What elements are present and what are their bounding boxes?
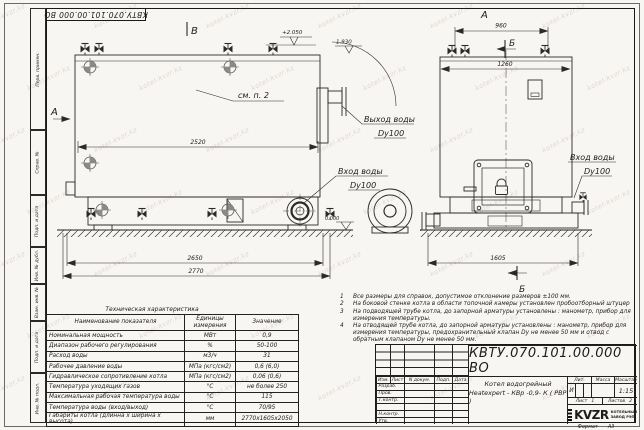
param-value: 115 — [236, 392, 299, 402]
tb-cell — [452, 390, 468, 397]
tb-row-nkontr: Н.контр. — [376, 410, 404, 417]
sheets-value: 2 — [629, 399, 632, 404]
format-label: Формат — [578, 424, 598, 430]
ground-line-left — [57, 230, 353, 237]
note-number: 4 — [337, 323, 353, 344]
tb-row-blank — [376, 403, 404, 410]
tb-row-razrab: Разраб. — [376, 383, 404, 390]
param-name: Максимальная рабочая температура воды — [47, 392, 185, 402]
tech-table-title: Техническая характеристика — [46, 306, 258, 313]
kvzr-logo-subtext: КОТЕЛЬНЫЙ ЗАВОД РЭП — [611, 410, 637, 419]
grid-line — [390, 345, 391, 376]
tb-cell — [404, 410, 434, 417]
param-value: 2770х1605х2050 — [236, 413, 299, 426]
grid-line — [452, 345, 453, 376]
tb-lit-value: И — [567, 383, 575, 397]
tb-cell — [452, 397, 468, 404]
tb-sheets-cell: Листов 2 — [602, 397, 637, 404]
view-label-v: В — [191, 26, 198, 37]
param-name: Номинальная мощность — [47, 331, 185, 341]
tb-cell — [434, 410, 452, 417]
tb-cell — [404, 417, 434, 424]
param-name: Габариты котла (длинна х ширина х высота… — [47, 413, 185, 426]
tb-cell — [434, 390, 452, 397]
tb-mass-value — [591, 383, 614, 397]
inlet-water-dn-side: Dy100 — [584, 167, 610, 176]
dim-2770: 2770 — [188, 268, 203, 275]
drawing-labels: В А А Б Б см. п. 2 +2.050 1.930 0.000 25… — [50, 10, 615, 295]
document-designation: КВТУ.070.101.00.000 ВО — [468, 345, 637, 376]
tb-scale-label: Масштаб — [614, 376, 637, 383]
blower-fan — [368, 189, 412, 233]
dim-1260: 1260 — [497, 61, 512, 68]
param-value: 0,9 — [236, 331, 299, 341]
param-units: °С — [185, 403, 236, 413]
tb-cell — [434, 417, 452, 424]
dimensions — [53, 22, 616, 280]
inlet-water-label-side: Вход воды — [570, 153, 615, 162]
table-row: Рабочее давление водыМПа (кгс/см2)0,6 (6… — [47, 361, 299, 371]
param-units: °С — [185, 382, 236, 392]
tb-col-podp: Подп. — [434, 376, 452, 383]
note-text: На подводящей трубе котла, до запорной а… — [353, 309, 633, 323]
note-item: 3 На подводящей трубе котла, до запорной… — [337, 309, 633, 323]
table-row: Диапазон рабочего регулирования%50-100 — [47, 341, 299, 351]
tb-row-utv: Утв. — [376, 417, 404, 424]
section-label-b-top: Б — [509, 39, 515, 49]
col-header-value: Значение — [236, 315, 299, 331]
param-value: 31 — [236, 351, 299, 361]
front-view-valves — [81, 44, 335, 221]
table-row: Габариты котла (длинна х ширина х высота… — [47, 413, 299, 426]
note-item: 2 На боковой стенке котла в области топо… — [337, 301, 633, 308]
param-units: МВт — [185, 331, 236, 341]
tb-col-izm: Изм. — [376, 376, 390, 383]
table-row: Номинальная мощностьМВт0,9 — [47, 331, 299, 341]
tb-row-prov: Пров. — [376, 390, 404, 397]
param-units: мм — [185, 413, 236, 426]
tb-cell — [434, 397, 452, 404]
param-units: МПа (кгс/см2) — [185, 361, 236, 371]
table-row: Температура уходящих газов°Сне более 250 — [47, 382, 299, 392]
note-text: На отводящей трубе котла, до запорной ар… — [353, 323, 633, 344]
tb-col-ndokum: N докум. — [404, 376, 434, 383]
param-value: 0,6 (6,0) — [236, 361, 299, 371]
tb-col-data: Дата — [452, 376, 468, 383]
note-item: 4 На отводящей трубе котла, до запорной … — [337, 323, 633, 344]
logo-sub-line1: КОТЕЛЬНЫЙ — [611, 410, 637, 414]
dim-1605: 1605 — [490, 255, 505, 262]
note-number: 1 — [337, 294, 353, 301]
outlet-water-label: Выход воды — [364, 115, 415, 124]
param-units: °С — [185, 392, 236, 402]
tb-cell — [452, 403, 468, 410]
param-value: 50-100 — [236, 341, 299, 351]
dim-2520: 2520 — [190, 139, 205, 146]
param-value: не более 250 — [236, 382, 299, 392]
product-name-line2: Heatexpert - КВр -0,9- К ( РВР ) — [469, 389, 567, 406]
sheet-label: Лист — [576, 399, 588, 404]
tb-cell — [404, 390, 434, 397]
param-name: Расход воды — [47, 351, 185, 361]
tb-cell — [583, 383, 591, 397]
grid-line — [404, 345, 405, 376]
product-name-cell: Котел водогрейный Heatexpert - КВр -0,9-… — [468, 376, 567, 424]
tb-cell — [434, 383, 452, 390]
tech-characteristics-table: Наименование показателя Единицы измерени… — [46, 314, 299, 427]
col-header-name: Наименование показателя — [47, 315, 185, 331]
table-row: Расход водым3/ч31 — [47, 351, 299, 361]
param-value: 0,06 (0,6) — [236, 372, 299, 382]
kvzr-logo-icon — [568, 409, 572, 421]
tb-cell — [404, 403, 434, 410]
dim-2650: 2650 — [187, 255, 202, 262]
elevation-zero: 0.000 — [325, 216, 339, 222]
title-block: Изм. Лист N докум. Подп. Дата Разраб. Пр… — [375, 344, 636, 423]
param-name: Рабочее давление воды — [47, 361, 185, 371]
tb-cell — [575, 383, 583, 397]
note-number: 2 — [337, 301, 353, 308]
param-units: м3/ч — [185, 351, 236, 361]
note-text: Все размеры для справок, допустимое откл… — [353, 294, 633, 301]
format-value: А3 — [608, 424, 615, 430]
table-header-row: Наименование показателя Единицы измерени… — [47, 315, 299, 331]
tb-sheet-cell: Лист 1 — [567, 397, 602, 404]
tb-row-tkontr: Т.контр. — [376, 397, 404, 404]
tb-cell — [404, 397, 434, 404]
tb-cell — [452, 417, 468, 424]
tb-cell — [404, 383, 434, 390]
grid-line — [434, 345, 435, 376]
kvzr-logo-text: KVZR — [574, 408, 609, 422]
company-logo-cell: KVZR КОТЕЛЬНЫЙ ЗАВОД РЭП — [567, 404, 637, 424]
sheet-value: 1 — [591, 399, 594, 404]
tb-cell — [434, 403, 452, 410]
inlet-water-label-front: Вход воды — [338, 167, 383, 176]
tb-scale-value: 1:15 — [614, 383, 637, 397]
elevation-outlet: 1.930 — [336, 40, 352, 46]
notes-block: 1 Все размеры для справок, допустимое от… — [337, 294, 633, 345]
note-text: На боковой стенке котла в области топочн… — [353, 301, 633, 308]
product-name-line1: Котел водогрейный — [484, 380, 551, 389]
col-header-units: Единицы измерения — [185, 315, 236, 331]
param-name: Температура уходящих газов — [47, 382, 185, 392]
logo-sub-line2: ЗАВОД РЭП — [611, 415, 637, 419]
elevation-top: +2.050 — [282, 30, 303, 36]
table-row: Температура воды (вход/выход)°С70/95 — [47, 403, 299, 413]
note-item: 1 Все размеры для справок, допустимое от… — [337, 294, 633, 301]
param-units: % — [185, 341, 236, 351]
param-name: Гидравлическое сопротивление котла — [47, 372, 185, 382]
sheets-label: Листов — [608, 399, 625, 404]
param-name: Диапазон рабочего регулирования — [47, 341, 185, 351]
table-row: Максимальная рабочая температура воды°С1… — [47, 392, 299, 402]
side-view-linework — [422, 50, 588, 232]
inlet-water-dn-front: Dy100 — [350, 181, 376, 190]
front-view-linework — [66, 42, 396, 230]
tb-lit-label: Лит. — [567, 376, 591, 383]
see-note-annotation: см. п. 2 — [238, 91, 269, 100]
outlet-water-dn: Dy100 — [378, 129, 404, 138]
param-units: МПа (кгс/см2) — [185, 372, 236, 382]
tb-mass-label: Масса — [591, 376, 614, 383]
datum-targets — [81, 58, 239, 219]
param-value: 70/95 — [236, 403, 299, 413]
view-label-a-top: А — [480, 10, 488, 21]
tb-cell — [452, 383, 468, 390]
format-note: Формат А3 — [556, 424, 636, 430]
tb-col-list: Лист — [390, 376, 404, 383]
table-row: Гидравлическое сопротивление котлаМПа (к… — [47, 372, 299, 382]
view-label-a-side: А — [50, 107, 58, 118]
tb-cell — [452, 410, 468, 417]
dim-960: 960 — [495, 23, 507, 30]
param-name: Температура воды (вход/выход) — [47, 403, 185, 413]
note-number: 3 — [337, 309, 353, 323]
